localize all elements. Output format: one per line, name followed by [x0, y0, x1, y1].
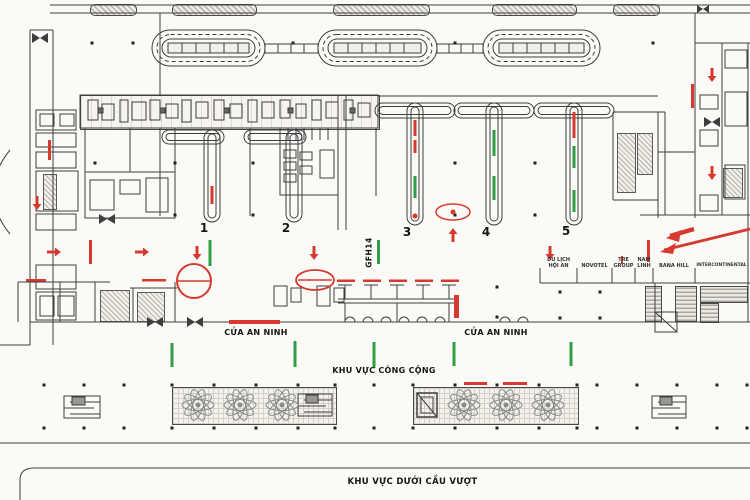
terminal-floor-plan: 1 2 3 4 5 GFH14 CỬA AN NINH CỬA AN NINH … — [0, 0, 750, 500]
rooms-and-fixtures — [36, 50, 747, 418]
public-area-label: KHU VỰC CÔNG CỘNG — [324, 366, 444, 376]
island-5-number: 5 — [558, 224, 574, 238]
island-4-number: 4 — [478, 225, 494, 239]
security-gate-label-2: CỬA AN NINH — [454, 328, 538, 338]
red-tick-mark — [414, 140, 417, 153]
red-dot — [451, 210, 456, 215]
red-tick-mark — [211, 186, 214, 204]
red-pointer-arrow — [660, 229, 750, 254]
floor-plan-linework — [0, 0, 750, 500]
red-highlight-ellipse — [177, 204, 470, 298]
island-1-number: 1 — [196, 221, 212, 235]
baggage-carousels — [152, 30, 600, 66]
red-down-arrow-icon — [33, 68, 717, 260]
red-tick-mark — [414, 120, 417, 136]
security-gate-label-1: CỬA AN NINH — [214, 328, 298, 338]
red-annotations — [26, 68, 750, 385]
concession-label-tre-group: TRE GROUP — [612, 257, 635, 270]
concession-label-novotel: NOVOTEL — [577, 263, 612, 269]
planter-tree-icon — [182, 388, 564, 422]
checkin-islands — [162, 103, 614, 225]
gate-code-label: GFH14 — [365, 231, 374, 275]
concession-label-bana-hill: BANA HILL — [653, 263, 695, 269]
island-3-number: 3 — [399, 225, 415, 239]
concession-label-nam-linh: NAM LINH — [635, 257, 653, 270]
red-tick-mark — [573, 112, 576, 138]
red-right-arrow-icon — [47, 248, 149, 257]
red-tick-mark — [26, 84, 694, 385]
concession-label-intercontinental: INTERCONTINENTAL — [695, 263, 748, 269]
concession-label-du-lich-hoi-an: DU LỊCH HỘI AN — [540, 257, 577, 270]
walls — [0, 5, 750, 500]
island-2-number: 2 — [278, 221, 294, 235]
underpass-area-label: KHU VỰC DƯỚI CẦU VƯỢT — [340, 477, 485, 487]
red-dot — [413, 214, 418, 219]
red-up-arrow-icon — [449, 228, 458, 242]
